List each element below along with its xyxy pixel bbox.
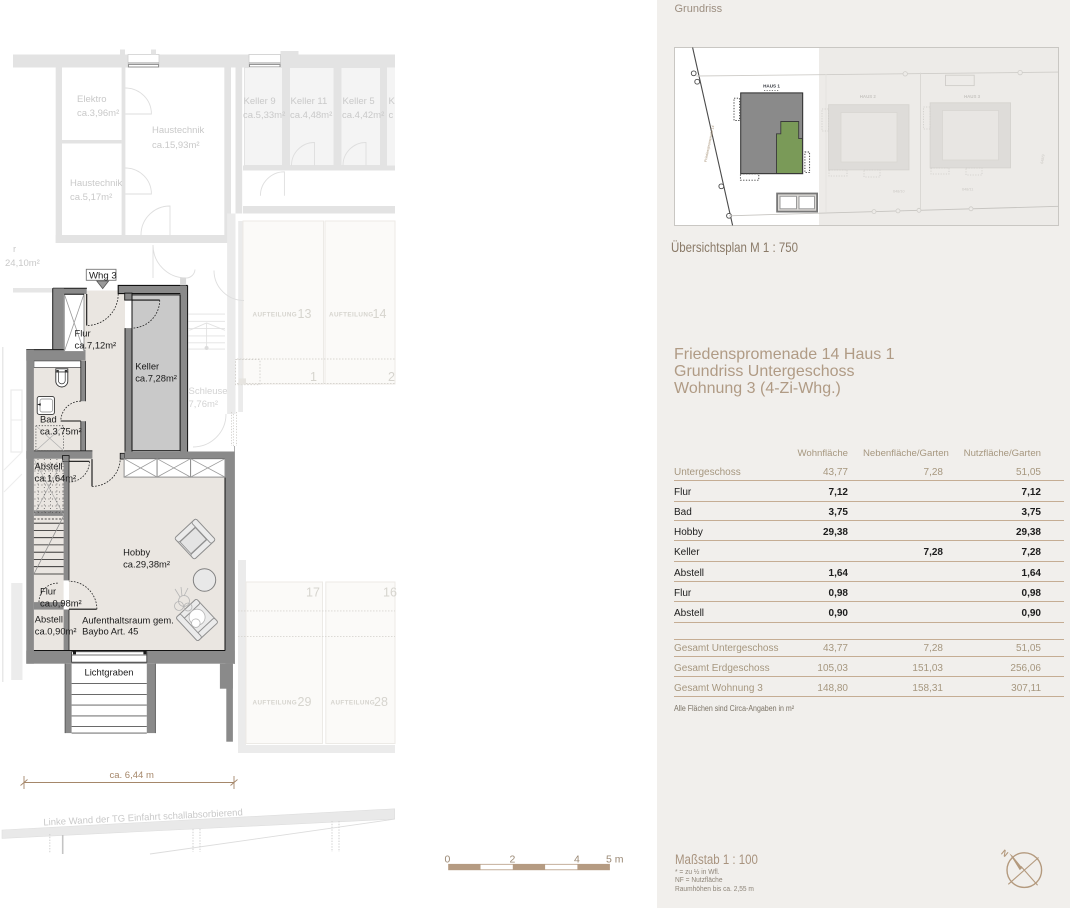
svg-text:ca.3,96m²: ca.3,96m²: [77, 108, 119, 119]
svg-text:HAUS 3: HAUS 3: [964, 94, 981, 99]
svg-text:648/11: 648/11: [962, 188, 973, 192]
svg-text:AUFTEILUNG: AUFTEILUNG: [329, 312, 374, 319]
svg-text:17: 17: [306, 586, 320, 600]
svg-text:ca.15,93m²: ca.15,93m²: [152, 140, 200, 151]
svg-text:Whg 3: Whg 3: [89, 271, 117, 282]
svg-text:16: 16: [383, 586, 397, 600]
svg-text:Flur: Flur: [40, 586, 56, 597]
svg-text:Flur: Flur: [75, 328, 91, 339]
svg-text:Aufenthaltsraum gem.: Aufenthaltsraum gem.: [82, 615, 174, 626]
svg-text:r: r: [13, 244, 16, 255]
svg-text:ca.1,64m²: ca.1,64m²: [35, 473, 77, 484]
svg-text:5 m: 5 m: [606, 853, 624, 865]
svg-text:ca. 6,44 m: ca. 6,44 m: [110, 770, 154, 781]
svg-text:ca.4,42m²: ca.4,42m²: [342, 110, 384, 121]
svg-text:HAUS 2: HAUS 2: [860, 94, 877, 99]
svg-text:Abstell: Abstell: [35, 461, 63, 472]
svg-text:Keller 5: Keller 5: [343, 96, 375, 107]
svg-text:ca.0,90m²: ca.0,90m²: [35, 626, 77, 637]
svg-text:AUFTEILUNG: AUFTEILUNG: [253, 312, 298, 319]
svg-text:Keller: Keller: [135, 361, 159, 372]
svg-text:1: 1: [310, 370, 317, 384]
svg-text:0: 0: [445, 853, 451, 865]
svg-text:ca.7,28m²: ca.7,28m²: [135, 373, 177, 384]
svg-text:ca.7,12m²: ca.7,12m²: [75, 340, 117, 351]
svg-text:AUFTEILUNG: AUFTEILUNG: [253, 700, 298, 707]
svg-text:648/10: 648/10: [893, 190, 905, 194]
svg-text:N: N: [999, 847, 1010, 859]
svg-text:AUFTEILUNG: AUFTEILUNG: [331, 700, 376, 707]
svg-text:HAUS 1: HAUS 1: [763, 84, 780, 89]
svg-text:Hobby: Hobby: [123, 547, 150, 558]
svg-text:Haustechnik: Haustechnik: [152, 125, 205, 136]
svg-text:Keller 9: Keller 9: [244, 96, 276, 107]
svg-text:K: K: [389, 96, 396, 107]
svg-text:Keller 11: Keller 11: [291, 96, 328, 107]
svg-text:Bad: Bad: [40, 414, 57, 425]
svg-text:2: 2: [510, 853, 516, 865]
svg-text:Abstell: Abstell: [35, 614, 63, 625]
svg-text:ca.5,17m²: ca.5,17m²: [70, 192, 112, 203]
svg-text:ca.5,33m²: ca.5,33m²: [243, 110, 285, 121]
svg-text:Haustechnik: Haustechnik: [70, 178, 123, 189]
svg-text:Lichtgraben: Lichtgraben: [85, 667, 134, 678]
svg-text:ca.0,98m²: ca.0,98m²: [40, 598, 82, 609]
svg-text:4: 4: [574, 853, 580, 865]
svg-text:2: 2: [388, 370, 395, 384]
svg-text:Schleuse: Schleuse: [189, 386, 228, 397]
svg-text:24,10m²: 24,10m²: [5, 258, 40, 269]
svg-text:7,76m²: 7,76m²: [189, 399, 219, 410]
svg-text:ca.3,75m²: ca.3,75m²: [40, 426, 82, 437]
svg-text:Elektro: Elektro: [77, 94, 107, 105]
svg-text:ca.29,38m²: ca.29,38m²: [123, 559, 170, 570]
svg-text:ca.4,48m²: ca.4,48m²: [290, 110, 332, 121]
svg-text:14: 14: [373, 307, 387, 321]
svg-text:28: 28: [374, 695, 388, 709]
svg-text:c: c: [389, 110, 394, 121]
svg-text:Baybo Art. 45: Baybo Art. 45: [82, 626, 138, 637]
svg-text:29: 29: [298, 695, 312, 709]
svg-text:13: 13: [298, 307, 312, 321]
